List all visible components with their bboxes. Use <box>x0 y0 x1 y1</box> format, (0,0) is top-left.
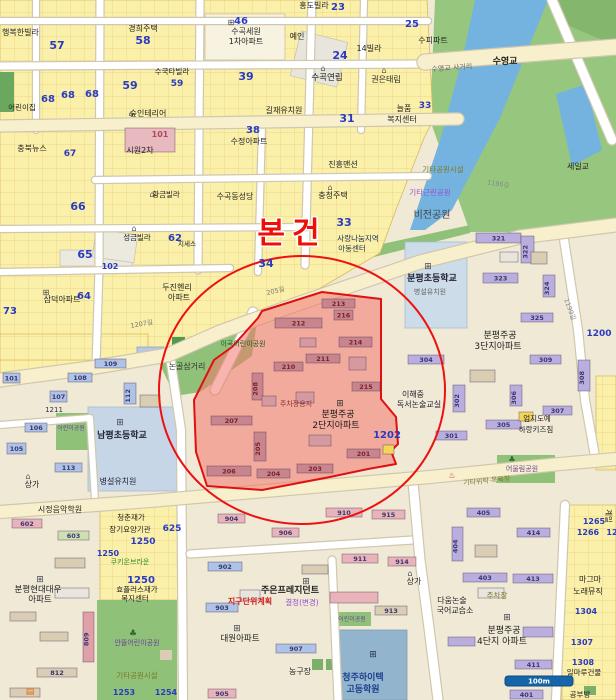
bldg-107-label: 107 <box>52 393 66 401</box>
bldg-414-label: 414 <box>527 529 541 537</box>
house-icon-seonggeum: ⌂ <box>131 224 136 233</box>
bldg-405-label: 405 <box>477 509 491 517</box>
st-h4 <box>95 176 428 180</box>
school-icon-4danji: ⊞ <box>503 613 511 623</box>
lot-1266: 1266 <box>577 528 600 537</box>
zone-small-2 <box>262 396 276 406</box>
lot-1254: 1254 <box>155 688 178 697</box>
school-icon-2danji: ⊞ <box>336 399 344 409</box>
lbl-sujeong: 수정아파트 <box>231 136 268 146</box>
bldg-4d-2 <box>523 627 553 637</box>
spa-icon: ♨ <box>448 471 455 480</box>
lbl-cookie: 쿠키온브라운 <box>111 557 150 566</box>
bldg-403-label: 403 <box>478 574 492 582</box>
lbl-hyundai1: 분평현대대우 <box>15 584 62 595</box>
bldg-208-label: 208 <box>252 382 260 396</box>
lot-68b: 68 <box>61 90 75 101</box>
lbl-kwoneun: 권은태림 <box>371 74 400 84</box>
bldg-404-label: 404 <box>452 539 460 553</box>
lbl-hyoplus1: 효플러스재가 <box>116 585 157 594</box>
lbl-magma2: 노래뮤직 <box>573 586 602 596</box>
bldg-304-label: 304 <box>419 356 433 364</box>
lot-101: 101 <box>152 130 169 139</box>
bldg-306-label: 306 <box>510 391 518 405</box>
lbl-gyeonghui: 경희주택 <box>128 23 157 33</box>
lot-68c: 68 <box>85 89 99 100</box>
lbl-daum2: 국어교습소 <box>437 605 474 615</box>
lot-59b: 59 <box>171 79 184 89</box>
house-icon-kwoneun: ⌂ <box>381 66 386 75</box>
lbl-4danji2: 4단지 아파트 <box>477 636 527 647</box>
bldg-308-label: 308 <box>578 371 586 385</box>
lbl-sarang2: 아동센터 <box>338 243 366 253</box>
lbl-sangga2: 상가 <box>407 576 422 586</box>
bldg-904-label: 904 <box>225 515 239 523</box>
scale-bar-text: 100m <box>528 678 550 686</box>
bldg-211-label: 211 <box>316 355 330 363</box>
bldg-322-label: 322 <box>522 245 530 259</box>
lbl-chungcheong: 충청주택 <box>318 190 347 200</box>
school-icon-hyundai: ⊞ <box>36 575 44 585</box>
bldg-903-label: 903 <box>215 604 229 612</box>
lbl-jigu: 지구단위계획 <box>228 596 272 606</box>
lot-12cut: 12 <box>606 528 616 537</box>
lbl-umji: 엄지도예 <box>523 413 551 423</box>
bldg-325-label: 325 <box>530 314 544 322</box>
lbl-magma1: 마그마 <box>579 575 602 584</box>
lbl-sijeong: 시정음악학원 <box>38 504 82 514</box>
lbl-neulpum2: 복지센터 <box>387 114 416 124</box>
lbl-3danji2: 3단지아파트 <box>474 341 521 352</box>
bldg-305-label: 305 <box>497 421 511 429</box>
bldg-216-label: 216 <box>337 311 351 319</box>
lot-1265: 1265 <box>583 517 606 526</box>
lbl-2danji1: 분평주공 <box>321 409 354 420</box>
store-icon-seveneleven: ▤ <box>26 687 35 697</box>
lbl-gita-gongwon: 기타공원시설 <box>422 165 463 174</box>
lot-57: 57 <box>49 39 64 52</box>
lbl-jucha: 주차장 <box>487 590 508 600</box>
bldg-tan-r1 <box>531 252 547 264</box>
lbl-supinterior: 숲인테리어 <box>130 108 167 118</box>
lbl-byeongseol2: 병설유치원 <box>414 287 446 296</box>
lbl-hitech1: 청주하이텍 <box>342 671 383 683</box>
lbl-ihae: 이해중 <box>402 389 424 399</box>
lbl-jumin: 주차장용지 <box>280 399 312 408</box>
bldg-hd-4 <box>40 632 68 641</box>
lot-102: 102 <box>102 262 119 271</box>
bldg-112-label: 112 <box>124 389 132 403</box>
bldg-108-label: 108 <box>73 374 87 382</box>
bldg-809-label: 809 <box>83 632 91 646</box>
lot-1202: 1202 <box>373 430 401 441</box>
lbl-hwanggeum: 황금빌라 <box>152 189 180 199</box>
st-4danji-v <box>413 482 438 700</box>
lot-1250b: 1250 <box>97 549 120 558</box>
lbl-sugukta: 수국타빌라 <box>155 67 190 76</box>
lbl-igok: 이곡어린이공원 <box>220 339 265 348</box>
bldg-201-label: 201 <box>357 450 371 458</box>
bldg-207-label: 207 <box>225 417 239 425</box>
court-sq-1 <box>312 659 323 670</box>
bldg-411-label: 411 <box>527 661 541 669</box>
lbl-cheongchun2: 장기요양기관 <box>109 524 150 534</box>
bldg-324-label: 324 <box>543 281 551 295</box>
bldg-214-label: 214 <box>349 338 363 346</box>
lbl-sarang1: 사랑나눔지역 <box>337 233 378 243</box>
lbl-jiseseu: 지세스 <box>178 239 196 248</box>
st-e-v <box>563 233 596 462</box>
bldg-hd-1 <box>55 558 85 568</box>
lbl-hongdo: 홍도빌라 <box>299 0 329 10</box>
bldg-915-label: 915 <box>382 511 396 519</box>
lot-1250a: 1250 <box>130 537 155 547</box>
lot-1307: 1307 <box>571 638 593 647</box>
school-icon-nampyeong: ⊞ <box>116 418 124 428</box>
bldg-911-label: 911 <box>353 555 367 563</box>
bldg-205-label: 205 <box>254 442 262 456</box>
park-sq-antteul <box>160 650 172 660</box>
lbl-nongol: 논골삼거리 <box>169 361 206 371</box>
lot-46: 46 <box>234 16 248 27</box>
lbl-antteul: 안뜰어린이공원 <box>114 638 159 647</box>
lbl-gita-gw2: 기타공원시설 <box>116 671 157 680</box>
school-icon-hitech: ⊞ <box>369 650 377 660</box>
bldg-jueun-t1 <box>302 565 328 574</box>
bldg-321-label: 321 <box>492 234 506 242</box>
lbl-14villa: 14빌라 <box>357 43 383 53</box>
lbl-sumok2: 1차아파트 <box>229 36 264 46</box>
lot-1304: 1304 <box>575 607 598 616</box>
lot-1253: 1253 <box>113 688 135 697</box>
bldg-401-label: 401 <box>520 691 534 699</box>
bldg-907-label: 907 <box>289 645 303 653</box>
bldg-4d-1 <box>448 637 475 646</box>
lbl-sugokdong: 수곡동성당 <box>217 191 254 201</box>
lot-65: 65 <box>77 248 92 261</box>
lot-67: 67 <box>64 149 77 159</box>
lot-1200: 1200 <box>586 329 611 339</box>
lot-33a: 33 <box>419 101 432 111</box>
st-jueun-h <box>190 540 413 554</box>
lbl-nonggu: 농구장 <box>289 666 312 676</box>
tree-icon-eoullim: ♣ <box>508 455 515 464</box>
lbl-eoullim: 어울림공원 <box>506 464 538 473</box>
lot-23: 23 <box>331 2 345 13</box>
bldg-204-label: 204 <box>267 470 281 478</box>
bldg-902-label: 902 <box>218 563 232 571</box>
lbl-daewon: 대원아파트 <box>220 633 259 644</box>
bldg-602-label: 602 <box>20 520 34 528</box>
lbl-harang: 하랑키즈짐 <box>519 424 554 434</box>
bldg-913-label: 913 <box>384 607 398 615</box>
lot-58: 58 <box>135 34 150 47</box>
bldg-206-label: 206 <box>222 467 236 475</box>
lbl-gita-geunrin: 기타근린공원 <box>409 187 450 197</box>
lot-66: 66 <box>70 200 86 213</box>
lbl-hyoplus2: 복지센터 <box>121 593 149 603</box>
lot-59a: 59 <box>122 79 137 92</box>
bldg-215-label: 215 <box>359 383 373 391</box>
lbl-4danji1: 분평주공 <box>487 625 520 636</box>
lbl-eorinijip: 어린이집 <box>8 102 36 112</box>
lbl-gyeil: 계일 <box>604 509 614 523</box>
zone-small-3 <box>300 338 316 347</box>
lbl-gongbu: 공부방 <box>570 689 591 699</box>
bldg-jueun-main <box>330 592 378 603</box>
lbl-2danji2: 2단지아파트 <box>312 420 359 431</box>
lbl-neulpum1: 늘품 <box>397 104 412 113</box>
lbl-hitech2: 고등학원 <box>346 683 379 695</box>
lbl-yein: 예인 <box>290 31 305 41</box>
lbl-daum1: 다움논술 <box>437 595 466 605</box>
lbl-siwon2: 시원2차 <box>126 146 154 155</box>
lbl-jueun: 주은프레지던트 <box>261 584 320 596</box>
lot-34: 34 <box>258 257 274 270</box>
bldg-tan-3d1 <box>470 370 495 382</box>
school-icon-daewon: ⊞ <box>233 624 241 634</box>
lot-625: 625 <box>163 524 182 534</box>
lbl-hyundai2: 아파트 <box>28 594 52 605</box>
bldg-906-label: 906 <box>279 529 293 537</box>
lbl-sugok-yeonlip: 수곡연립 <box>311 73 342 83</box>
bldg-212-label: 212 <box>292 319 306 327</box>
map-canvas[interactable]: 1011091081071121061051133213223233243253… <box>0 0 616 700</box>
bldg-301-label: 301 <box>445 432 459 440</box>
bldg-tan-r2 <box>500 252 518 262</box>
lbl-byeongseol: 병설유치원 <box>100 476 137 486</box>
bldg-113-label: 113 <box>62 464 76 472</box>
bldg-209 <box>349 357 366 370</box>
lbl-eorini-gw-l: 어린이공원 <box>57 424 85 432</box>
bldg-106-label: 106 <box>29 424 43 432</box>
lbl-3danji1: 분평주공 <box>483 330 516 341</box>
lot-73: 73 <box>3 306 17 317</box>
bldg-302-label: 302 <box>453 394 461 408</box>
bldg-812-label: 812 <box>50 669 64 677</box>
lbl-jinheung: 진흥맨션 <box>328 159 357 169</box>
bldg-323-label: 323 <box>494 274 508 282</box>
lbl-bunpyeong-elem: 분평초등학교 <box>407 272 457 284</box>
bldg-tan-l1 <box>140 395 160 407</box>
lot-31: 31 <box>339 112 354 125</box>
lot-24: 24 <box>332 49 348 62</box>
tree-icon-antteul: ♣ <box>129 629 137 639</box>
subject-label: 본건 <box>257 216 326 251</box>
school-icon-bunpyeong-elem: ⊞ <box>424 262 432 272</box>
lbl-nampyeong: 남평초등학교 <box>97 429 147 441</box>
bldg-101-label: 101 <box>5 374 19 382</box>
lbl-seonggeum: 성금빌라 <box>123 233 151 242</box>
lot-68a: 68 <box>41 94 55 105</box>
lbl-cheongchun1: 청춘재가 <box>117 513 145 522</box>
lbl-chungbuk-news: 충북뉴스 <box>17 144 46 153</box>
lbl-dujin2: 아파트 <box>168 292 190 302</box>
bldg-213-label: 213 <box>332 300 346 308</box>
bldg-4d-tan1 <box>475 545 497 557</box>
bldg-905-label: 905 <box>215 690 229 698</box>
bldg-109-label: 109 <box>104 360 118 368</box>
lbl-gyeoljeong: 결정(변경) <box>285 597 319 607</box>
lot-25: 25 <box>405 19 419 30</box>
house-icon-sugok: ⌂ <box>320 64 325 73</box>
lbl-seilgyo: 세일교 <box>567 162 589 171</box>
lot-1308: 1308 <box>572 658 595 667</box>
lbl-ipmaru: 일마루건물 <box>567 667 602 677</box>
lbl-sueyonggyo: 수영교 <box>493 55 518 67</box>
lot-38: 38 <box>246 125 260 136</box>
bldg-413-label: 413 <box>526 575 540 583</box>
bldg-309-label: 309 <box>539 356 553 364</box>
lbl-dokseo: 독서논술교실 <box>397 399 441 409</box>
lbl-giljae: 길재유치원 <box>266 106 303 115</box>
lot-39: 39 <box>238 70 253 83</box>
bldg-307-label: 307 <box>551 407 565 415</box>
bldg-603-label: 603 <box>67 532 81 540</box>
lbl-sangga1: 상가 <box>25 479 40 489</box>
bldg-203-label: 203 <box>308 465 322 473</box>
lot-1211: 1211 <box>45 406 63 414</box>
bldg-hd-3 <box>10 612 36 621</box>
bldg-105-label: 105 <box>10 445 24 453</box>
lbl-eorini-gw-c: 어린이공원 <box>338 615 366 623</box>
bldg-202 <box>309 435 331 446</box>
bldg-914-label: 914 <box>395 558 409 566</box>
lbl-bijeon: 비전공원 <box>414 209 451 221</box>
st-h2 <box>0 64 426 66</box>
lbl-supi: 수피파트 <box>418 36 447 45</box>
lbl-samdeok: 삼덕아파트 <box>44 294 81 304</box>
map-svg: 1011091081071121061051133213223233243253… <box>0 0 616 700</box>
lbl-sumok1: 수곡세원 <box>231 27 260 36</box>
lot-33b: 33 <box>336 216 351 229</box>
lbl-haengbok: 행복한빌라 <box>2 27 39 37</box>
lbl-dujin1: 두진헨리 <box>162 282 191 292</box>
bldg-210-label: 210 <box>282 363 296 371</box>
zone-notch-yellow <box>383 445 394 454</box>
